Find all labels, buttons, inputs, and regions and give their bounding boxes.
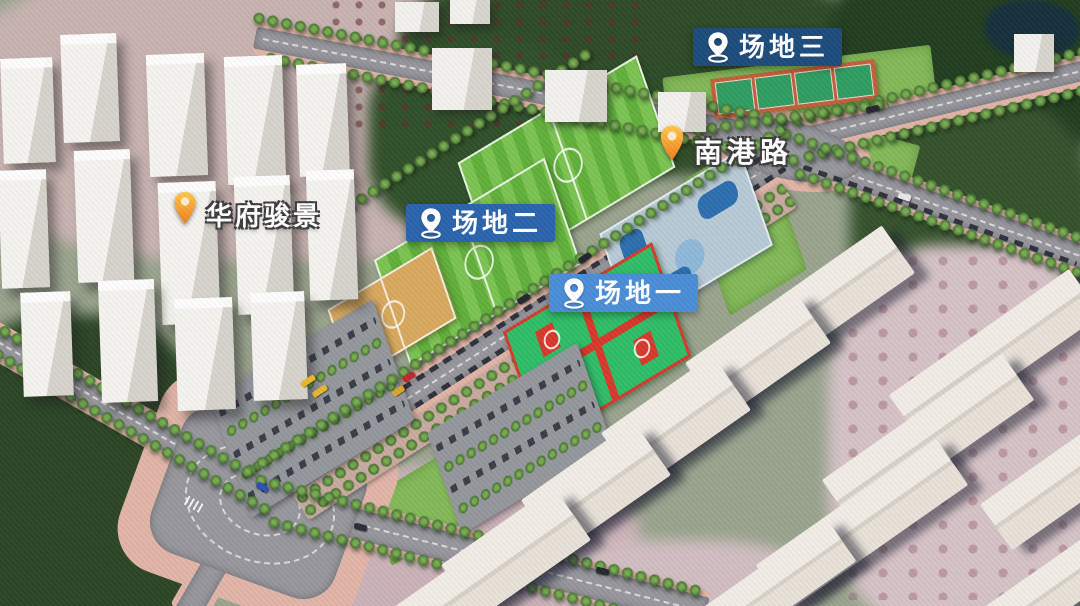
low-building — [450, 0, 490, 24]
tower-building — [20, 291, 74, 397]
location-pin-icon — [419, 207, 443, 239]
site1-badge: 场地一 — [549, 274, 698, 312]
orange-pin-icon — [172, 190, 198, 226]
site3-label: 场地三 — [739, 34, 829, 60]
site3-badge: 场地三 — [693, 28, 842, 66]
tower-building — [0, 169, 50, 289]
low-building — [1014, 34, 1054, 72]
location-pin-icon — [562, 277, 586, 309]
tennis-court — [755, 74, 793, 108]
tower-building — [98, 279, 158, 403]
tower-building — [0, 57, 56, 164]
tower-building — [296, 63, 350, 177]
tennis-court — [795, 70, 833, 104]
low-building — [545, 70, 607, 122]
orange-pin-icon — [658, 124, 686, 162]
nangang-road-marker: 南港路 — [658, 124, 793, 171]
low-building — [432, 48, 492, 110]
tower-building — [250, 291, 308, 401]
low-building — [395, 2, 439, 32]
site1-label: 场地一 — [595, 280, 685, 306]
huafu-junjing-label: 华府骏景 — [206, 196, 322, 233]
aerial-site-map: 场地三 场地二 场地一 南港路 — [0, 0, 1080, 606]
tower-building — [60, 33, 120, 143]
location-pin-icon — [706, 31, 730, 63]
tower-building — [146, 53, 208, 177]
site2-badge: 场地二 — [406, 204, 555, 242]
tennis-court — [835, 65, 873, 99]
tower-building — [306, 169, 359, 301]
tower-building — [74, 149, 135, 283]
tower-building — [174, 297, 236, 411]
nangang-road-label: 南港路 — [694, 131, 793, 171]
tower-building — [224, 55, 286, 185]
site2-label: 场地二 — [452, 210, 542, 236]
huafu-junjing-marker: 华府骏景 — [172, 190, 322, 233]
